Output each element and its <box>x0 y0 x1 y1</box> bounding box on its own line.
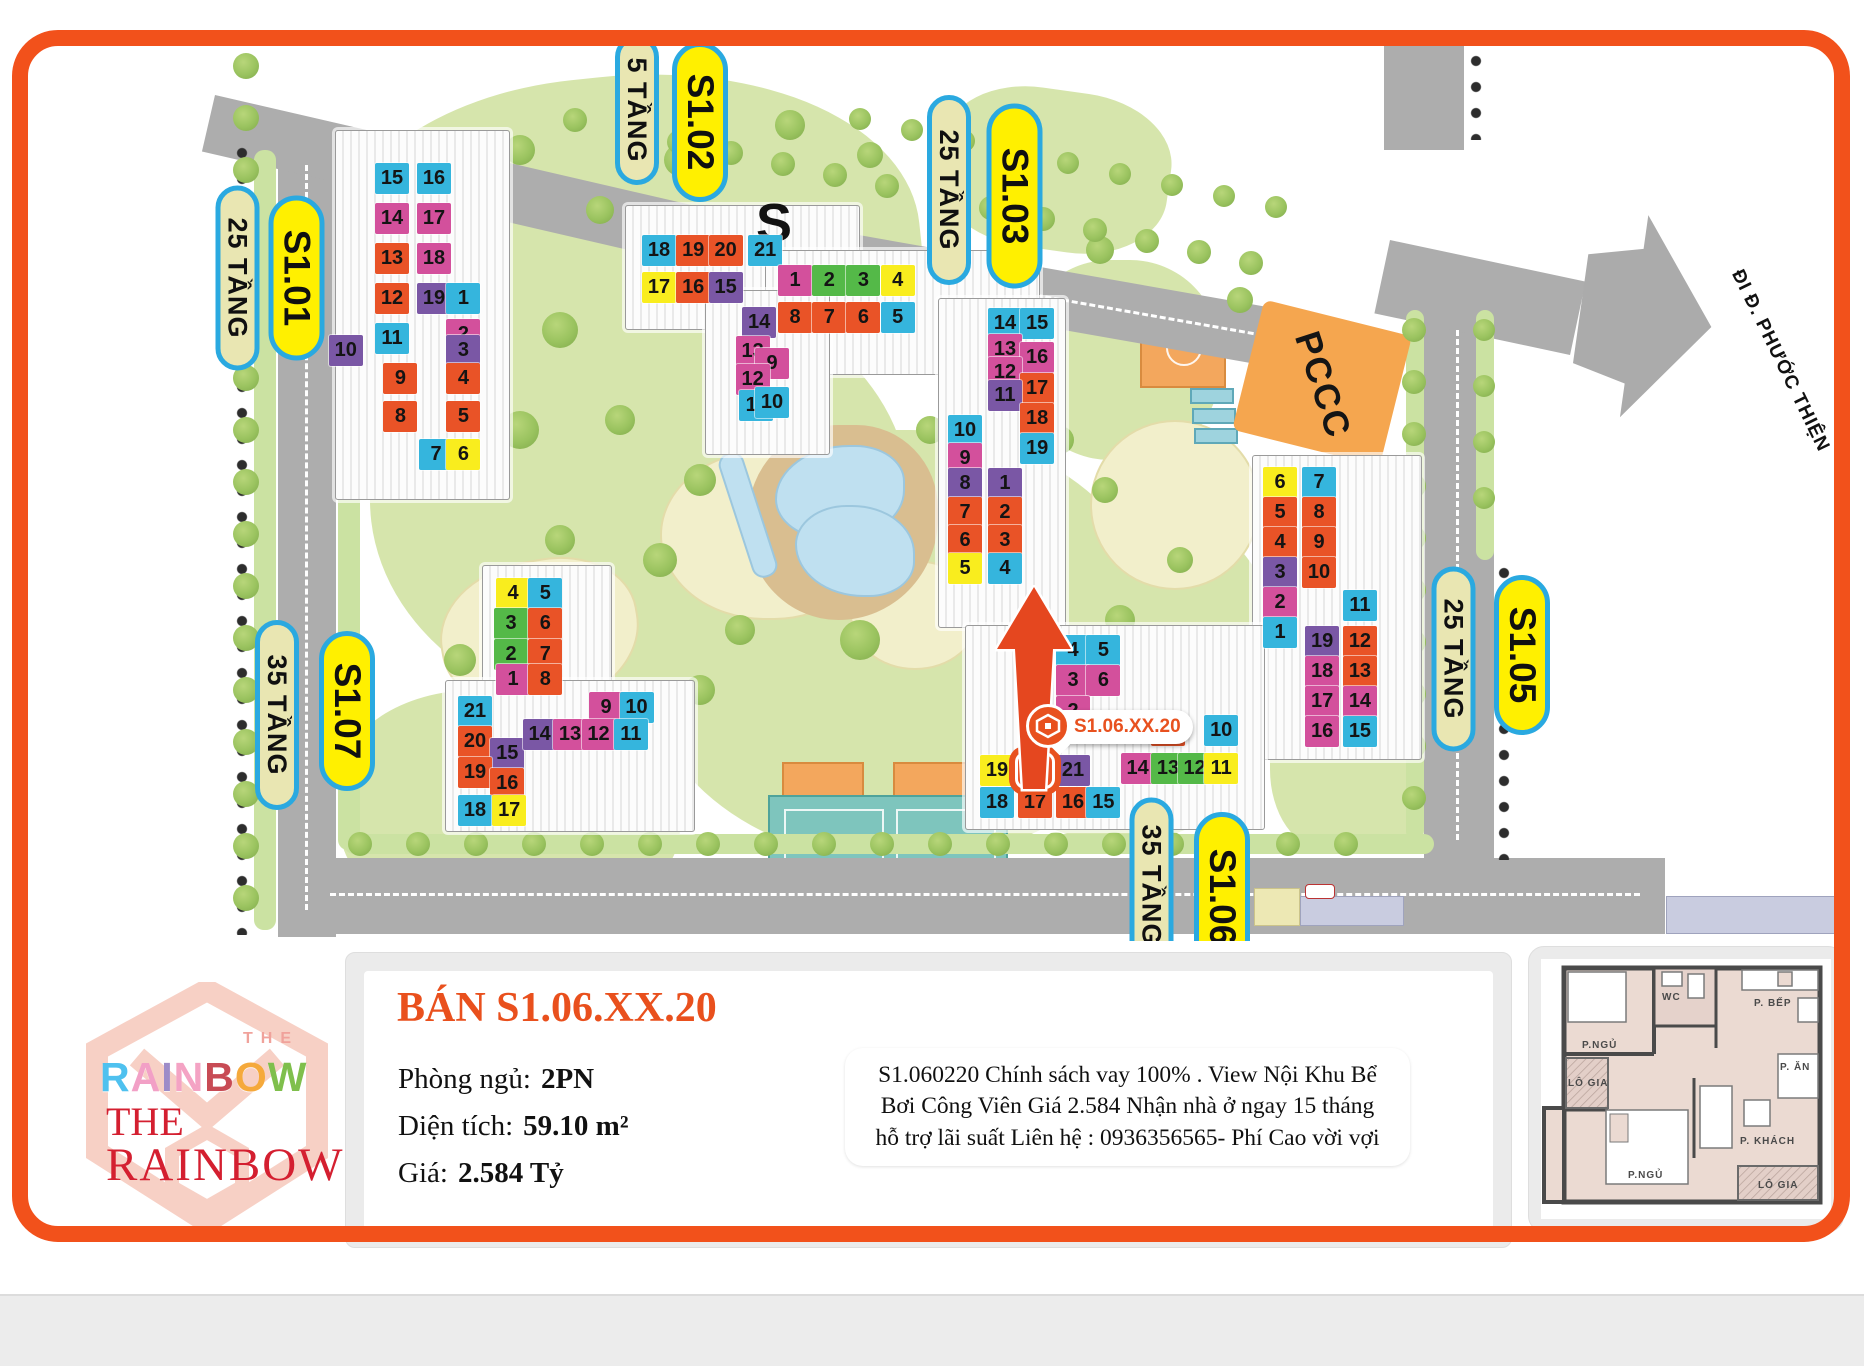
tree-icon <box>1102 832 1126 856</box>
floors-label: 5 TẦNG <box>615 35 659 185</box>
tree-icon <box>1187 240 1211 264</box>
room-label: P. ĂN <box>1780 1060 1810 1073</box>
building-label: S1.01 <box>268 196 324 361</box>
logo-letter: O <box>235 1054 268 1100</box>
unit-cell[interactable]: 9 <box>383 363 417 394</box>
unit-cell[interactable]: 14 <box>523 719 557 750</box>
tree-icon <box>233 885 259 911</box>
building-label: S1.06 <box>1194 812 1250 941</box>
building-label: S1.07 <box>319 631 375 791</box>
tree-icon <box>812 832 836 856</box>
unit-cell[interactable]: 11 <box>988 380 1022 411</box>
unit-cell[interactable]: 18 <box>417 243 451 274</box>
unit-cell[interactable]: 16 <box>676 272 710 303</box>
unit-cell[interactable]: 8 <box>1302 497 1336 528</box>
unit-cell[interactable]: 10 <box>755 387 789 418</box>
tree-icon <box>986 832 1010 856</box>
logo-letter: W <box>268 1054 308 1100</box>
unit-cell[interactable]: 11 <box>375 323 409 354</box>
unit-cell[interactable]: 11 <box>1343 590 1377 621</box>
tree-icon <box>1265 196 1287 218</box>
unit-cell[interactable]: 2 <box>1263 587 1297 618</box>
room-label: LÔ GIA <box>1758 1178 1798 1191</box>
tree-icon <box>928 832 952 856</box>
unit-cell[interactable]: 4 <box>881 265 915 296</box>
unit-cell[interactable]: 19 <box>1305 626 1339 657</box>
unit-cell[interactable]: 8 <box>778 302 812 333</box>
utility-box <box>1192 408 1236 424</box>
unit-cell[interactable]: 18 <box>642 235 676 266</box>
tree-icon <box>605 405 635 435</box>
tree-icon <box>775 110 805 140</box>
tree-icon <box>580 832 604 856</box>
outside-building <box>1300 896 1404 926</box>
attribute-row: Diện tích: 59.10 m² <box>398 1103 629 1150</box>
tree-icon <box>849 108 871 130</box>
tree-icon <box>1473 319 1495 341</box>
tree-icon <box>857 142 883 168</box>
unit-cell[interactable]: 3 <box>1263 557 1297 588</box>
attribute-value: 59.10 m² <box>523 1110 628 1143</box>
road <box>1384 40 1464 150</box>
floors-label: 35 TẦNG <box>1129 798 1173 942</box>
unit-cell[interactable]: 21 <box>458 696 492 727</box>
logo-letter: B <box>204 1054 235 1100</box>
tree-icon <box>233 469 259 495</box>
unit-cell[interactable]: 15 <box>709 272 743 303</box>
building-label: S1.05 <box>1494 575 1550 735</box>
unit-cell[interactable]: 16 <box>417 163 451 194</box>
tree-icon <box>233 417 259 443</box>
tree-icon <box>233 573 259 599</box>
unit-cell[interactable]: 10 <box>1204 715 1238 746</box>
tree-icon <box>638 832 662 856</box>
tree-icon <box>1135 229 1159 253</box>
unit-cell[interactable]: 2 <box>812 265 846 296</box>
unit-cell[interactable]: 17 <box>1020 373 1054 404</box>
unit-cell[interactable]: 21 <box>748 235 782 266</box>
unit-cell[interactable]: 4 <box>446 363 480 394</box>
unit-cell[interactable]: 8 <box>528 664 562 695</box>
unit-cell[interactable]: 5 <box>1086 635 1120 666</box>
unit-cell[interactable]: 10 <box>1302 557 1336 588</box>
unit-cell[interactable]: 18 <box>458 795 492 826</box>
tree-icon <box>684 464 716 496</box>
road-centerline <box>330 893 1640 896</box>
tree-icon <box>563 108 587 132</box>
tree-icon <box>875 174 899 198</box>
attribute-label: Phòng ngủ: <box>398 1063 531 1096</box>
tree-icon <box>233 521 259 547</box>
tree-icon <box>1402 370 1426 394</box>
tree-icon <box>754 832 778 856</box>
floors-label: 25 TẦNG <box>215 186 259 371</box>
unit-cell[interactable]: 15 <box>375 163 409 194</box>
tree-icon <box>1334 832 1358 856</box>
tree-icon <box>643 543 677 577</box>
logo-rainbow-big: RAINBOW <box>106 1138 345 1192</box>
outside-building <box>1666 896 1836 934</box>
tree-icon <box>1083 218 1107 242</box>
unit-cell[interactable]: 15 <box>490 738 524 769</box>
logo-letter: I <box>161 1054 173 1100</box>
unit-cell[interactable]: 17 <box>1305 686 1339 717</box>
tree-icon <box>1473 431 1495 453</box>
tree-icon <box>901 119 923 141</box>
unit-cell[interactable]: 18 <box>1020 403 1054 434</box>
attribute-label: Diện tích: <box>398 1110 513 1143</box>
tree-icon <box>1239 251 1263 275</box>
tree-icon <box>1092 477 1118 503</box>
unit-cell[interactable]: 17 <box>417 203 451 234</box>
outside-building <box>1254 888 1300 926</box>
unit-cell[interactable]: 6 <box>948 525 982 556</box>
unit-cell[interactable]: 3 <box>494 608 528 639</box>
logo-letter: N <box>174 1054 205 1100</box>
room-label: P.NGỦ <box>1582 1038 1617 1051</box>
unit-cell[interactable]: 2 <box>988 497 1022 528</box>
unit-cell[interactable]: 7 <box>948 497 982 528</box>
floors-label: 35 TẦNG <box>255 620 299 810</box>
unit-cell[interactable]: 10 <box>948 415 982 446</box>
unit-marker-label: S1.06.XX.20 <box>1074 716 1181 738</box>
tree-icon <box>233 105 259 131</box>
tree-icon <box>348 832 372 856</box>
tree-icon <box>1109 163 1131 185</box>
unit-cell[interactable]: 1 <box>496 664 530 695</box>
tree-icon <box>1402 422 1426 446</box>
listing-title: BÁN S1.06.XX.20 <box>397 984 717 1032</box>
unit-cell[interactable]: 15 <box>1343 716 1377 747</box>
unit-cell[interactable]: 14 <box>742 307 776 338</box>
tree-icon <box>870 832 894 856</box>
unit-cell[interactable]: 10 <box>329 335 363 366</box>
unit-cell[interactable]: 12 <box>582 719 616 750</box>
unit-cell[interactable]: 3 <box>446 335 480 366</box>
tree-icon <box>233 53 259 79</box>
site-plan-map: PCCC ĐI Đ. PHƯỚC THIỆN S 151614171318121… <box>0 0 1864 941</box>
unit-cell[interactable]: 1 <box>1263 617 1297 648</box>
tree-icon <box>1161 174 1183 196</box>
floors-label: 25 TẦNG <box>1431 567 1475 752</box>
unit-cell[interactable]: 9 <box>1302 527 1336 558</box>
tree-icon <box>406 832 430 856</box>
unit-cell[interactable]: 1 <box>778 265 812 296</box>
unit-cell[interactable]: 11 <box>1204 753 1238 784</box>
tree-icon <box>1402 318 1426 342</box>
tree-icon <box>233 157 259 183</box>
unit-cell[interactable]: 7 <box>812 302 846 333</box>
logo-letter: R <box>100 1054 131 1100</box>
road <box>300 858 1665 934</box>
unit-cell[interactable]: 8 <box>948 468 982 499</box>
building-label: S1.02 <box>672 42 728 202</box>
tree-dots <box>1470 48 1482 140</box>
unit-cell[interactable]: 19 <box>1020 433 1054 464</box>
car <box>1305 884 1335 899</box>
tree-icon <box>823 163 847 187</box>
unit-marker-pill[interactable]: S1.06.XX.20 <box>1040 710 1193 744</box>
attribute-label: Giá: <box>398 1157 448 1190</box>
tree-icon <box>1167 547 1193 573</box>
road-name-label: ĐI Đ. PHƯỚC THIỆN <box>1726 266 1833 455</box>
tree-icon <box>771 152 795 176</box>
listing-description: S1.060220 Chính sách vay 100% . View Nội… <box>845 1048 1410 1166</box>
unit-cell[interactable]: 12 <box>375 283 409 314</box>
tree-icon <box>545 525 575 555</box>
unit-cell[interactable]: 14 <box>1343 686 1377 717</box>
unit-cell[interactable]: 1 <box>446 283 480 314</box>
unit-cell[interactable]: 6 <box>1263 467 1297 498</box>
tree-icon <box>586 196 614 224</box>
logo-the-small: THE <box>243 1030 299 1048</box>
tree-icon <box>696 832 720 856</box>
floors-label: 25 TẦNG <box>927 95 971 285</box>
unit-cell[interactable]: 8 <box>383 401 417 432</box>
room-label: LÔ GIA <box>1568 1076 1608 1089</box>
utility-box <box>1190 388 1234 404</box>
selected-unit-arrow <box>995 585 1073 793</box>
attribute-row: Giá: 2.584 Tỷ <box>398 1150 629 1197</box>
room-label: P.NGỦ <box>1628 1168 1663 1181</box>
room-label: P. BẾP <box>1754 996 1792 1009</box>
unit-cell[interactable]: 18 <box>1305 656 1339 687</box>
unit-cell[interactable]: 16 <box>1305 716 1339 747</box>
unit-cell[interactable]: 14 <box>375 203 409 234</box>
tree-icon <box>1227 287 1253 313</box>
unit-cell[interactable]: 4 <box>1263 527 1297 558</box>
unit-cell[interactable]: 20 <box>458 726 492 757</box>
road-direction-arrow <box>1557 199 1736 438</box>
unit-cell[interactable]: 1 <box>988 468 1022 499</box>
unit-cell[interactable]: 5 <box>881 302 915 333</box>
tree-icon <box>233 833 259 859</box>
unit-cell[interactable]: 6 <box>846 302 880 333</box>
tree-icon <box>464 832 488 856</box>
listing-attributes: Phòng ngủ: 2PN Diện tích: 59.10 m² Giá: … <box>398 1056 629 1197</box>
attribute-value: 2PN <box>541 1063 594 1096</box>
attribute-value: 2.584 Tỷ <box>458 1157 564 1190</box>
unit-cell[interactable]: 3 <box>988 525 1022 556</box>
unit-cell[interactable]: 13 <box>1343 656 1377 687</box>
unit-cell[interactable]: 17 <box>492 795 526 826</box>
logo-rainbow-colored: RAINBOW <box>100 1054 307 1101</box>
tree-icon <box>1402 786 1426 810</box>
unit-cell[interactable]: 4 <box>988 553 1022 584</box>
tree-icon <box>522 832 546 856</box>
tree-icon <box>1473 487 1495 509</box>
floorplan-image: P.NGỦ WC P. BẾP LÔ GIA P. ĂN P. KHÁCH P.… <box>1542 958 1834 1220</box>
attribute-row: Phòng ngủ: 2PN <box>398 1056 629 1103</box>
logo-letter: A <box>131 1054 162 1100</box>
unit-cell[interactable]: 6 <box>528 608 562 639</box>
unit-cell[interactable]: 15 <box>1086 787 1120 818</box>
page-background-band <box>0 1294 1864 1366</box>
tree-icon <box>840 620 880 660</box>
unit-cell[interactable]: 14 <box>1121 753 1155 784</box>
unit-cell[interactable]: 19 <box>676 235 710 266</box>
unit-cell[interactable]: 6 <box>446 439 480 470</box>
unit-cell[interactable]: 16 <box>1020 342 1054 373</box>
unit-cell[interactable]: 6 <box>1086 665 1120 696</box>
brand-badge-icon <box>1026 704 1070 748</box>
unit-cell[interactable]: 11 <box>614 719 648 750</box>
tree-icon <box>1044 832 1068 856</box>
building-label: S1.03 <box>986 104 1042 289</box>
unit-cell[interactable]: 19 <box>458 757 492 788</box>
unit-cell[interactable]: 20 <box>709 235 743 266</box>
unit-cell[interactable]: 17 <box>642 272 676 303</box>
utility-box <box>1194 428 1238 444</box>
tree-icon <box>1276 832 1300 856</box>
unit-cell[interactable]: 5 <box>1263 497 1297 528</box>
unit-cell[interactable]: 5 <box>528 578 562 609</box>
unit-cell[interactable]: 12 <box>1343 626 1377 657</box>
tree-icon <box>542 312 578 348</box>
tree-icon <box>1057 152 1079 174</box>
unit-cell[interactable]: 7 <box>1302 467 1336 498</box>
tree-icon <box>1213 185 1235 207</box>
room-label: P. KHÁCH <box>1740 1134 1795 1147</box>
tree-icon <box>1473 375 1495 397</box>
unit-cell[interactable]: 5 <box>948 553 982 584</box>
unit-cell[interactable]: 5 <box>446 401 480 432</box>
unit-cell[interactable]: 13 <box>375 243 409 274</box>
unit-cell[interactable]: 3 <box>846 265 880 296</box>
room-label: WC <box>1662 992 1681 1003</box>
tree-icon <box>444 644 476 676</box>
unit-cell[interactable]: 4 <box>496 578 530 609</box>
tree-icon <box>725 615 755 645</box>
unit-cell[interactable]: 15 <box>1020 308 1054 339</box>
